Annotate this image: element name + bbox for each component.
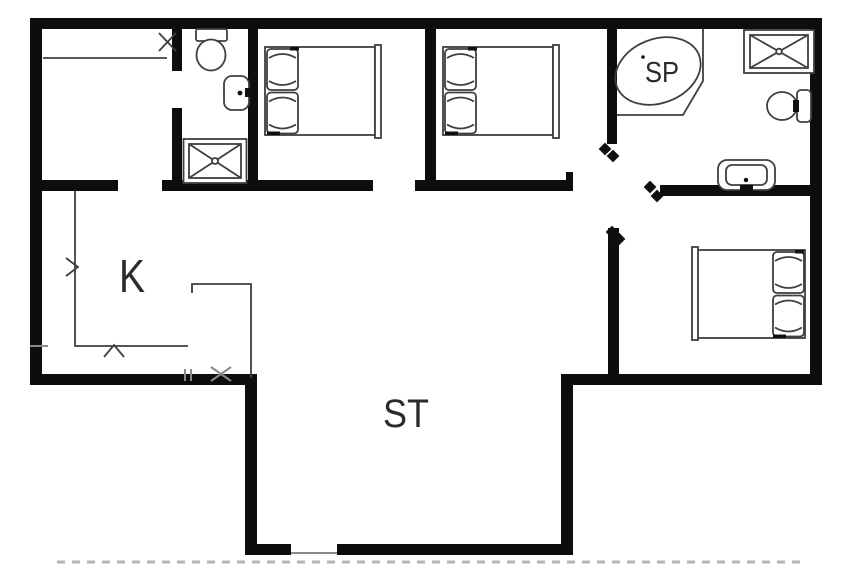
- shower-drain-icon: [212, 158, 218, 164]
- wall-bottom-right-section: [561, 374, 822, 385]
- bedroom3-bed: [692, 247, 805, 340]
- bed-corner-tick: [795, 250, 804, 254]
- toilet-bowl-icon: [767, 92, 797, 120]
- shower-drain-icon: [776, 49, 782, 55]
- wall-top: [30, 18, 822, 29]
- bed-corner-tick: [468, 47, 477, 51]
- bed-footboard: [375, 45, 381, 138]
- washbasin-drain-dot: [744, 178, 748, 182]
- kitchen-counters: [66, 191, 251, 378]
- bedroom2-bed: [443, 45, 559, 138]
- entry-hall: [43, 33, 176, 58]
- wall-left: [30, 18, 42, 385]
- bed-corner-tick: [290, 47, 299, 51]
- toilet-tank-icon: [797, 90, 811, 122]
- bed-frame: [697, 250, 805, 338]
- door-markers: [599, 143, 664, 246]
- floor-plan-svg: K ST SP: [0, 0, 848, 565]
- bed-corner-tick: [267, 132, 280, 136]
- door-marker-spa: [599, 143, 620, 163]
- bed-footboard: [692, 247, 698, 340]
- spa-bathroom: [605, 25, 814, 193]
- wall-corridor-end-hook: [566, 172, 573, 182]
- bed-footboard: [553, 45, 559, 138]
- kitchen-label: K: [119, 250, 145, 302]
- living-room-label: ST: [383, 392, 429, 436]
- floor-plan-canvas: K ST SP: [0, 0, 848, 565]
- spa-label: SP: [645, 57, 679, 89]
- wall-bedroom3-left: [608, 228, 619, 374]
- kitchen-peninsula-counter: [192, 284, 251, 378]
- wall-living-right: [561, 374, 573, 555]
- washbasin-faucet: [740, 185, 753, 193]
- washbasin-faucet: [245, 88, 252, 97]
- toilet-bowl-icon: [197, 40, 226, 71]
- wall-living-bottom-a: [245, 544, 291, 555]
- bed-corner-tick: [445, 132, 458, 136]
- bed-corner-tick: [773, 335, 786, 339]
- wall-entry-bath-lower: [172, 108, 182, 180]
- bathroom-small: [184, 29, 253, 183]
- wall-bedroom1-bedroom2: [425, 29, 436, 180]
- wall-corridor-c: [415, 180, 573, 191]
- wall-bedroom2-spa: [607, 29, 617, 144]
- toilet-hinge: [793, 100, 799, 112]
- wall-living-left: [245, 374, 257, 555]
- bedroom1-bed: [265, 45, 381, 138]
- kitchen-hob-marker-icon: [66, 258, 78, 276]
- wall-living-bottom-b: [337, 544, 573, 555]
- door-marker-icon: [644, 181, 657, 194]
- bed-frame: [443, 47, 553, 135]
- washbasin-drain-dot: [238, 91, 243, 96]
- bed-frame: [265, 47, 375, 135]
- wall-corridor-a: [40, 180, 118, 191]
